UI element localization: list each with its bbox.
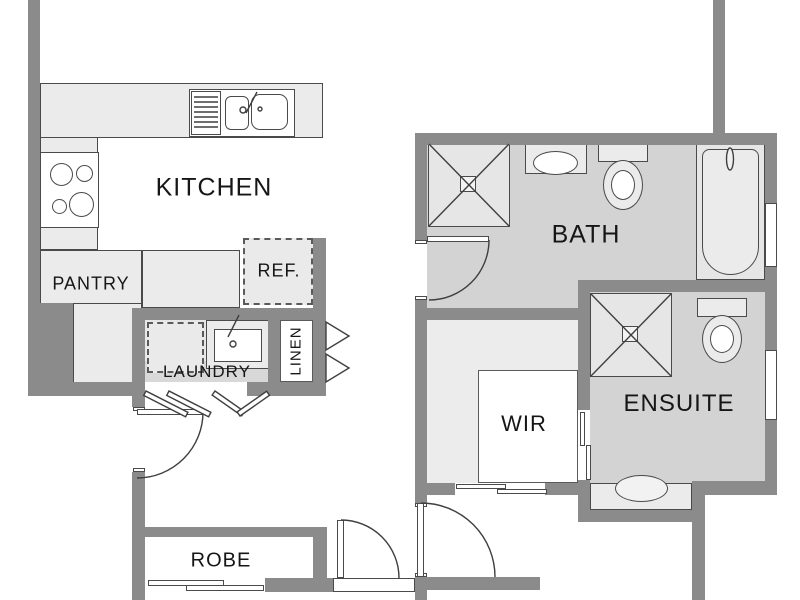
ensuite-basin	[615, 475, 668, 502]
wall-vanity-bottom	[578, 510, 705, 522]
wall-vertical-bottom-right	[692, 495, 705, 600]
room-label-laundry: LAUNDRY	[163, 362, 251, 382]
burner-big-1	[50, 163, 73, 186]
hall-door-arc	[137, 412, 203, 478]
wall-wir-bottom-left	[427, 483, 455, 495]
room-label-linen: LINEN	[288, 326, 305, 375]
robe-slider-panel	[186, 585, 264, 591]
wall-laundry-left	[132, 308, 145, 407]
bottom-opening	[333, 578, 415, 592]
ensuite-slider-panel	[580, 412, 585, 446]
wall-wir-top	[427, 308, 578, 320]
ensuite-slider-panel	[586, 445, 591, 480]
bedroom2-door-arc	[341, 520, 399, 578]
wall-left-bottom	[415, 577, 427, 600]
bathtub	[702, 149, 759, 275]
sink-drainer	[191, 91, 221, 135]
sink-bowl-large	[251, 94, 288, 130]
ensuite-shower-drain	[622, 326, 638, 342]
wall-linen-left	[268, 320, 280, 382]
ensuite-toilet-seat	[710, 325, 734, 353]
ensuite-window	[765, 350, 777, 420]
wall-bottom-robe	[265, 578, 333, 592]
wall-left-mid	[415, 300, 427, 503]
burner-small-1	[76, 165, 93, 182]
linen-bifold-door	[326, 354, 349, 382]
wall-wir-bottom-right	[545, 483, 578, 495]
room-label-ref: REF.	[257, 261, 300, 282]
hall-door-leaf	[137, 409, 203, 415]
cooktop	[40, 152, 99, 228]
bath-basin	[533, 151, 578, 175]
bath-window	[765, 203, 777, 267]
room-label-ensuite: ENSUITE	[623, 390, 734, 418]
bath-shower-drain	[460, 176, 476, 192]
wall-bath-top	[415, 133, 777, 145]
wall-top-stub	[713, 0, 725, 136]
linen-bifold-door	[326, 322, 349, 350]
wall-robe-top	[140, 527, 327, 537]
wall-bottom-center	[427, 577, 540, 590]
bedroom2-door-leaf	[337, 520, 344, 578]
wall-wir-ensuite-upper	[578, 292, 590, 410]
wall-bath-right-upper	[765, 145, 777, 203]
wall-bath-left-upper	[415, 145, 427, 240]
bath-floor-lower	[427, 280, 578, 308]
sink-bowl-small	[225, 96, 249, 130]
room-label-pantry: PANTRY	[52, 274, 129, 295]
room-label-robe: ROBE	[191, 550, 252, 573]
kitchen-bench-mid	[142, 250, 240, 308]
jamb	[415, 296, 427, 300]
wall-laundry-top	[132, 308, 325, 320]
wall-pantry-bottom	[28, 382, 142, 396]
wall-ref-right	[313, 238, 326, 396]
bedroom-door-leaf	[417, 503, 424, 577]
bath-toilet-seat	[611, 170, 635, 200]
jamb	[133, 468, 145, 472]
burner-small-2	[52, 199, 67, 214]
room-label-kitchen: KITCHEN	[156, 174, 273, 203]
bedroom-door-arc	[421, 503, 495, 577]
wir-slider-panel	[497, 489, 547, 494]
burner-big-2	[69, 192, 94, 217]
laundry-tub-bowl	[214, 329, 262, 362]
jamb	[415, 240, 427, 244]
bath-door-leaf	[427, 236, 489, 242]
wall-ensuite-top	[578, 280, 777, 292]
room-label-wir: WIR	[501, 411, 547, 437]
wall-ensuite-bottom-right	[692, 481, 777, 495]
room-label-bath: BATH	[552, 221, 621, 250]
floor-plan: KITCHEN PANTRY REF. LAUNDRY LINEN BATH W…	[0, 0, 800, 600]
